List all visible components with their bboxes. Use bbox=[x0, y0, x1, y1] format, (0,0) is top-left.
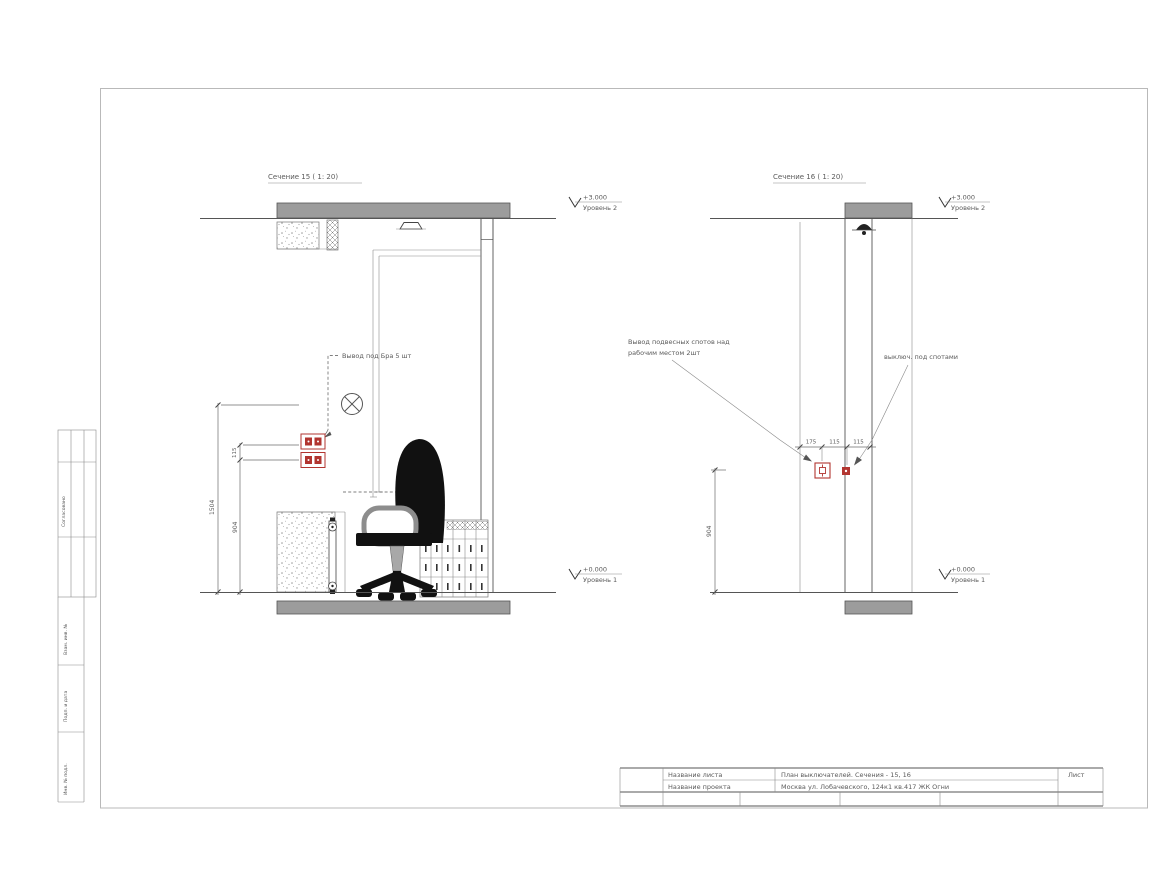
floor-slab bbox=[277, 601, 510, 614]
stamp-approved-label: Согласовано bbox=[61, 496, 67, 527]
sheet-border bbox=[101, 89, 1148, 809]
stamp-label-3: Инв. № подл. bbox=[63, 763, 69, 795]
level-marker-bottom-right: +0.000 Уровень 1 bbox=[939, 566, 990, 585]
level-top-value: +3.000 bbox=[583, 194, 607, 202]
leader-left bbox=[672, 360, 812, 462]
pipe-riser bbox=[329, 518, 337, 595]
leader-right bbox=[854, 365, 908, 466]
section-15-title: Сечение 15 ( 1: 20) bbox=[268, 173, 338, 181]
titleblock-sheet-name-label: Название листа bbox=[668, 771, 722, 779]
socket-block-upper-icon bbox=[301, 434, 325, 449]
level-top-label-right: Уровень 2 bbox=[951, 204, 985, 212]
level-top-value-right: +3.000 bbox=[951, 194, 975, 202]
dim-height-value: 904 bbox=[706, 525, 713, 537]
socket-outlet-icon bbox=[815, 463, 830, 478]
stamp-label-2: Подп. и дата bbox=[63, 691, 69, 722]
drawing-sheet: Согласовано Взам. инв. № Подп. и дата Ин… bbox=[0, 0, 1155, 893]
level-bottom-value: +0.000 bbox=[583, 566, 607, 574]
wall-light-symbol-icon bbox=[342, 394, 363, 415]
ceiling-slab bbox=[277, 203, 510, 218]
floor-slab-right bbox=[845, 601, 912, 614]
section-15-drawing: Сечение 15 ( 1: 20) bbox=[200, 173, 622, 614]
section-16-annotation-line1: Вывод подвесных спотов над bbox=[628, 338, 730, 346]
level-marker-top-left: +3.000 Уровень 2 bbox=[569, 194, 622, 213]
dim-chain-3: 115 bbox=[853, 440, 864, 446]
dim-gap-value: 115 bbox=[232, 447, 238, 458]
section-16-annotation-line2: рабочим местом 2шт bbox=[628, 349, 700, 357]
small-outlet-icon bbox=[842, 467, 850, 475]
level-top-label: Уровень 2 bbox=[583, 204, 617, 212]
titleblock-sheet-name-value: План выключателей. Сечения - 15, 16 bbox=[781, 771, 911, 779]
dimension-height-right: 904 bbox=[706, 468, 726, 596]
dim-chain-1: 175 bbox=[806, 440, 817, 446]
level-bottom-label-right: Уровень 1 bbox=[951, 576, 985, 584]
ceiling-slab-right bbox=[845, 203, 912, 218]
titleblock-project-value: Москва ул. Лобачевского, 124к1 кв.417 ЖК… bbox=[781, 783, 949, 791]
section-16-title: Сечение 16 ( 1: 20) bbox=[773, 173, 843, 181]
concrete-block-top bbox=[277, 222, 319, 249]
titleblock-list-label: Лист bbox=[1068, 771, 1085, 779]
wall-top-detail bbox=[481, 219, 493, 240]
section-15-annotation: Вывод под Бра 5 шт bbox=[342, 352, 412, 360]
title-block: Название листа Название проекта План вык… bbox=[620, 768, 1103, 806]
stamp-label-1: Взам. инв. № bbox=[63, 624, 69, 655]
section-16-annotation-right: выключ. под спотами bbox=[884, 353, 958, 361]
ceiling-spot-light bbox=[400, 223, 422, 230]
level-bottom-label: Уровень 1 bbox=[583, 576, 617, 584]
side-stamp: Согласовано Взам. инв. № Подп. и дата Ин… bbox=[58, 430, 96, 802]
dim-socket-value: 904 bbox=[232, 521, 239, 533]
level-bottom-value-right: +0.000 bbox=[951, 566, 975, 574]
concrete-block-bottom bbox=[277, 512, 335, 592]
section-16-drawing: Сечение 16 ( 1: 20) Вывод подвесных спот… bbox=[628, 173, 990, 614]
dim-chain-2: 115 bbox=[829, 440, 840, 446]
level-marker-top-right: +3.000 Уровень 2 bbox=[939, 194, 990, 213]
cad-drawing-svg: Согласовано Взам. инв. № Подп. и дата Ин… bbox=[0, 0, 1155, 893]
dim-outer-value: 1504 bbox=[209, 500, 216, 515]
annotation-leader bbox=[324, 356, 339, 439]
hatched-strip-top bbox=[327, 220, 338, 250]
titleblock-project-label: Название проекта bbox=[668, 783, 731, 791]
socket-block-lower-icon bbox=[301, 453, 325, 468]
level-marker-bottom-left: +0.000 Уровень 1 bbox=[569, 566, 622, 585]
